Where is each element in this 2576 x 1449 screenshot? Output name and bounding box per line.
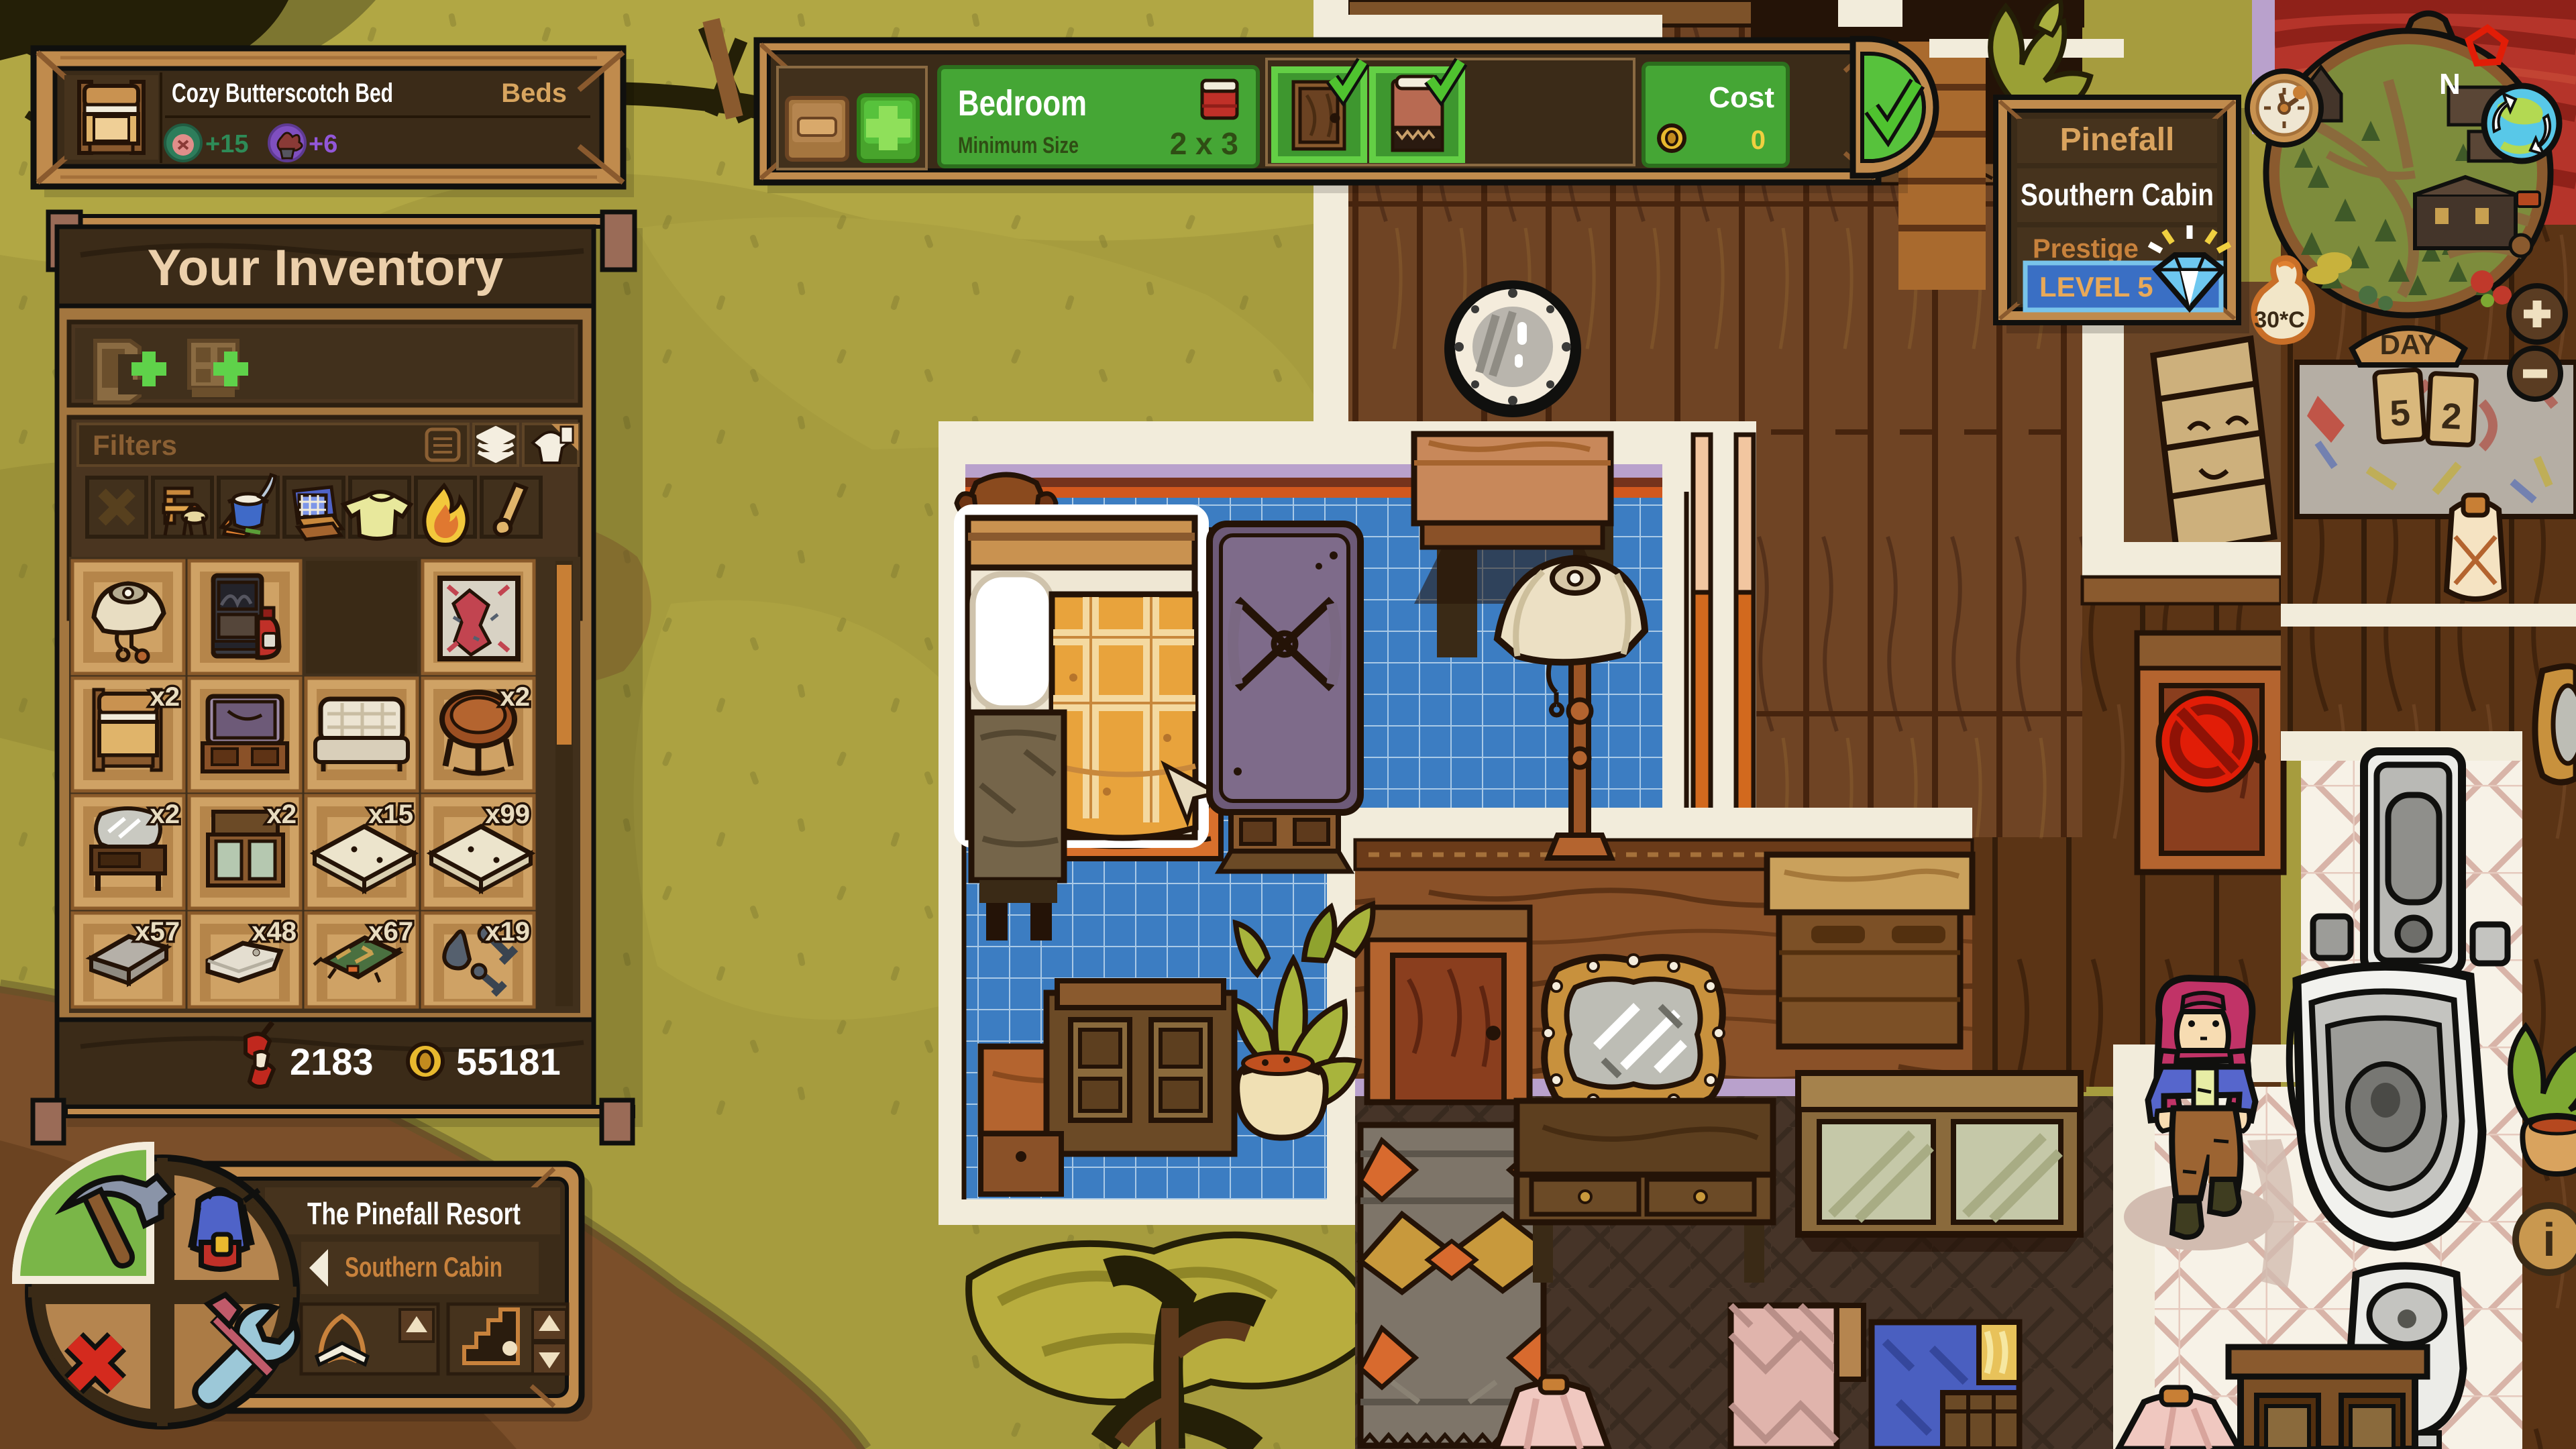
svg-text:LEVEL 5: LEVEL 5 [2039, 271, 2153, 303]
svg-text:x99: x99 [485, 800, 530, 829]
svg-text:The Pinefall Resort: The Pinefall Resort [307, 1196, 521, 1231]
svg-text:i: i [2542, 1214, 2555, 1266]
svg-text:x48: x48 [252, 917, 297, 947]
svg-text:Your Inventory: Your Inventory [148, 239, 504, 297]
svg-text:2183: 2183 [290, 1040, 374, 1083]
svg-text:55181: 55181 [456, 1040, 561, 1083]
svg-text:Cozy Butterscotch Bed: Cozy Butterscotch Bed [172, 78, 393, 108]
svg-text:DAY: DAY [2380, 329, 2437, 360]
svg-text:Beds: Beds [501, 78, 567, 108]
svg-text:Southern Cabin: Southern Cabin [2021, 177, 2214, 212]
svg-text:2: 2 [2440, 396, 2463, 437]
svg-text:5: 5 [2389, 392, 2412, 434]
svg-text:x2: x2 [150, 682, 180, 712]
svg-text:Minimum Size: Minimum Size [958, 133, 1079, 158]
svg-text:Cost: Cost [1709, 81, 1774, 114]
svg-text:+15: +15 [205, 130, 248, 158]
svg-text:Bedroom: Bedroom [958, 83, 1087, 123]
svg-text:x2: x2 [150, 800, 180, 829]
svg-text:Southern Cabin: Southern Cabin [345, 1251, 502, 1283]
svg-text:Pinefall: Pinefall [2060, 122, 2175, 158]
svg-text:x15: x15 [368, 800, 413, 829]
svg-text:x57: x57 [135, 917, 180, 947]
svg-text:2 x 3: 2 x 3 [1170, 126, 1238, 161]
svg-text:30*C: 30*C [2254, 307, 2305, 333]
svg-text:0: 0 [1751, 125, 1766, 155]
svg-text:x2: x2 [500, 682, 531, 712]
svg-text:x2: x2 [267, 800, 297, 829]
svg-text:+6: +6 [309, 130, 337, 158]
svg-text:N: N [2439, 68, 2461, 101]
svg-text:x19: x19 [485, 917, 530, 947]
svg-text:Prestige: Prestige [2033, 234, 2139, 264]
svg-text:Filters: Filters [93, 429, 177, 461]
svg-text:x67: x67 [368, 917, 413, 947]
